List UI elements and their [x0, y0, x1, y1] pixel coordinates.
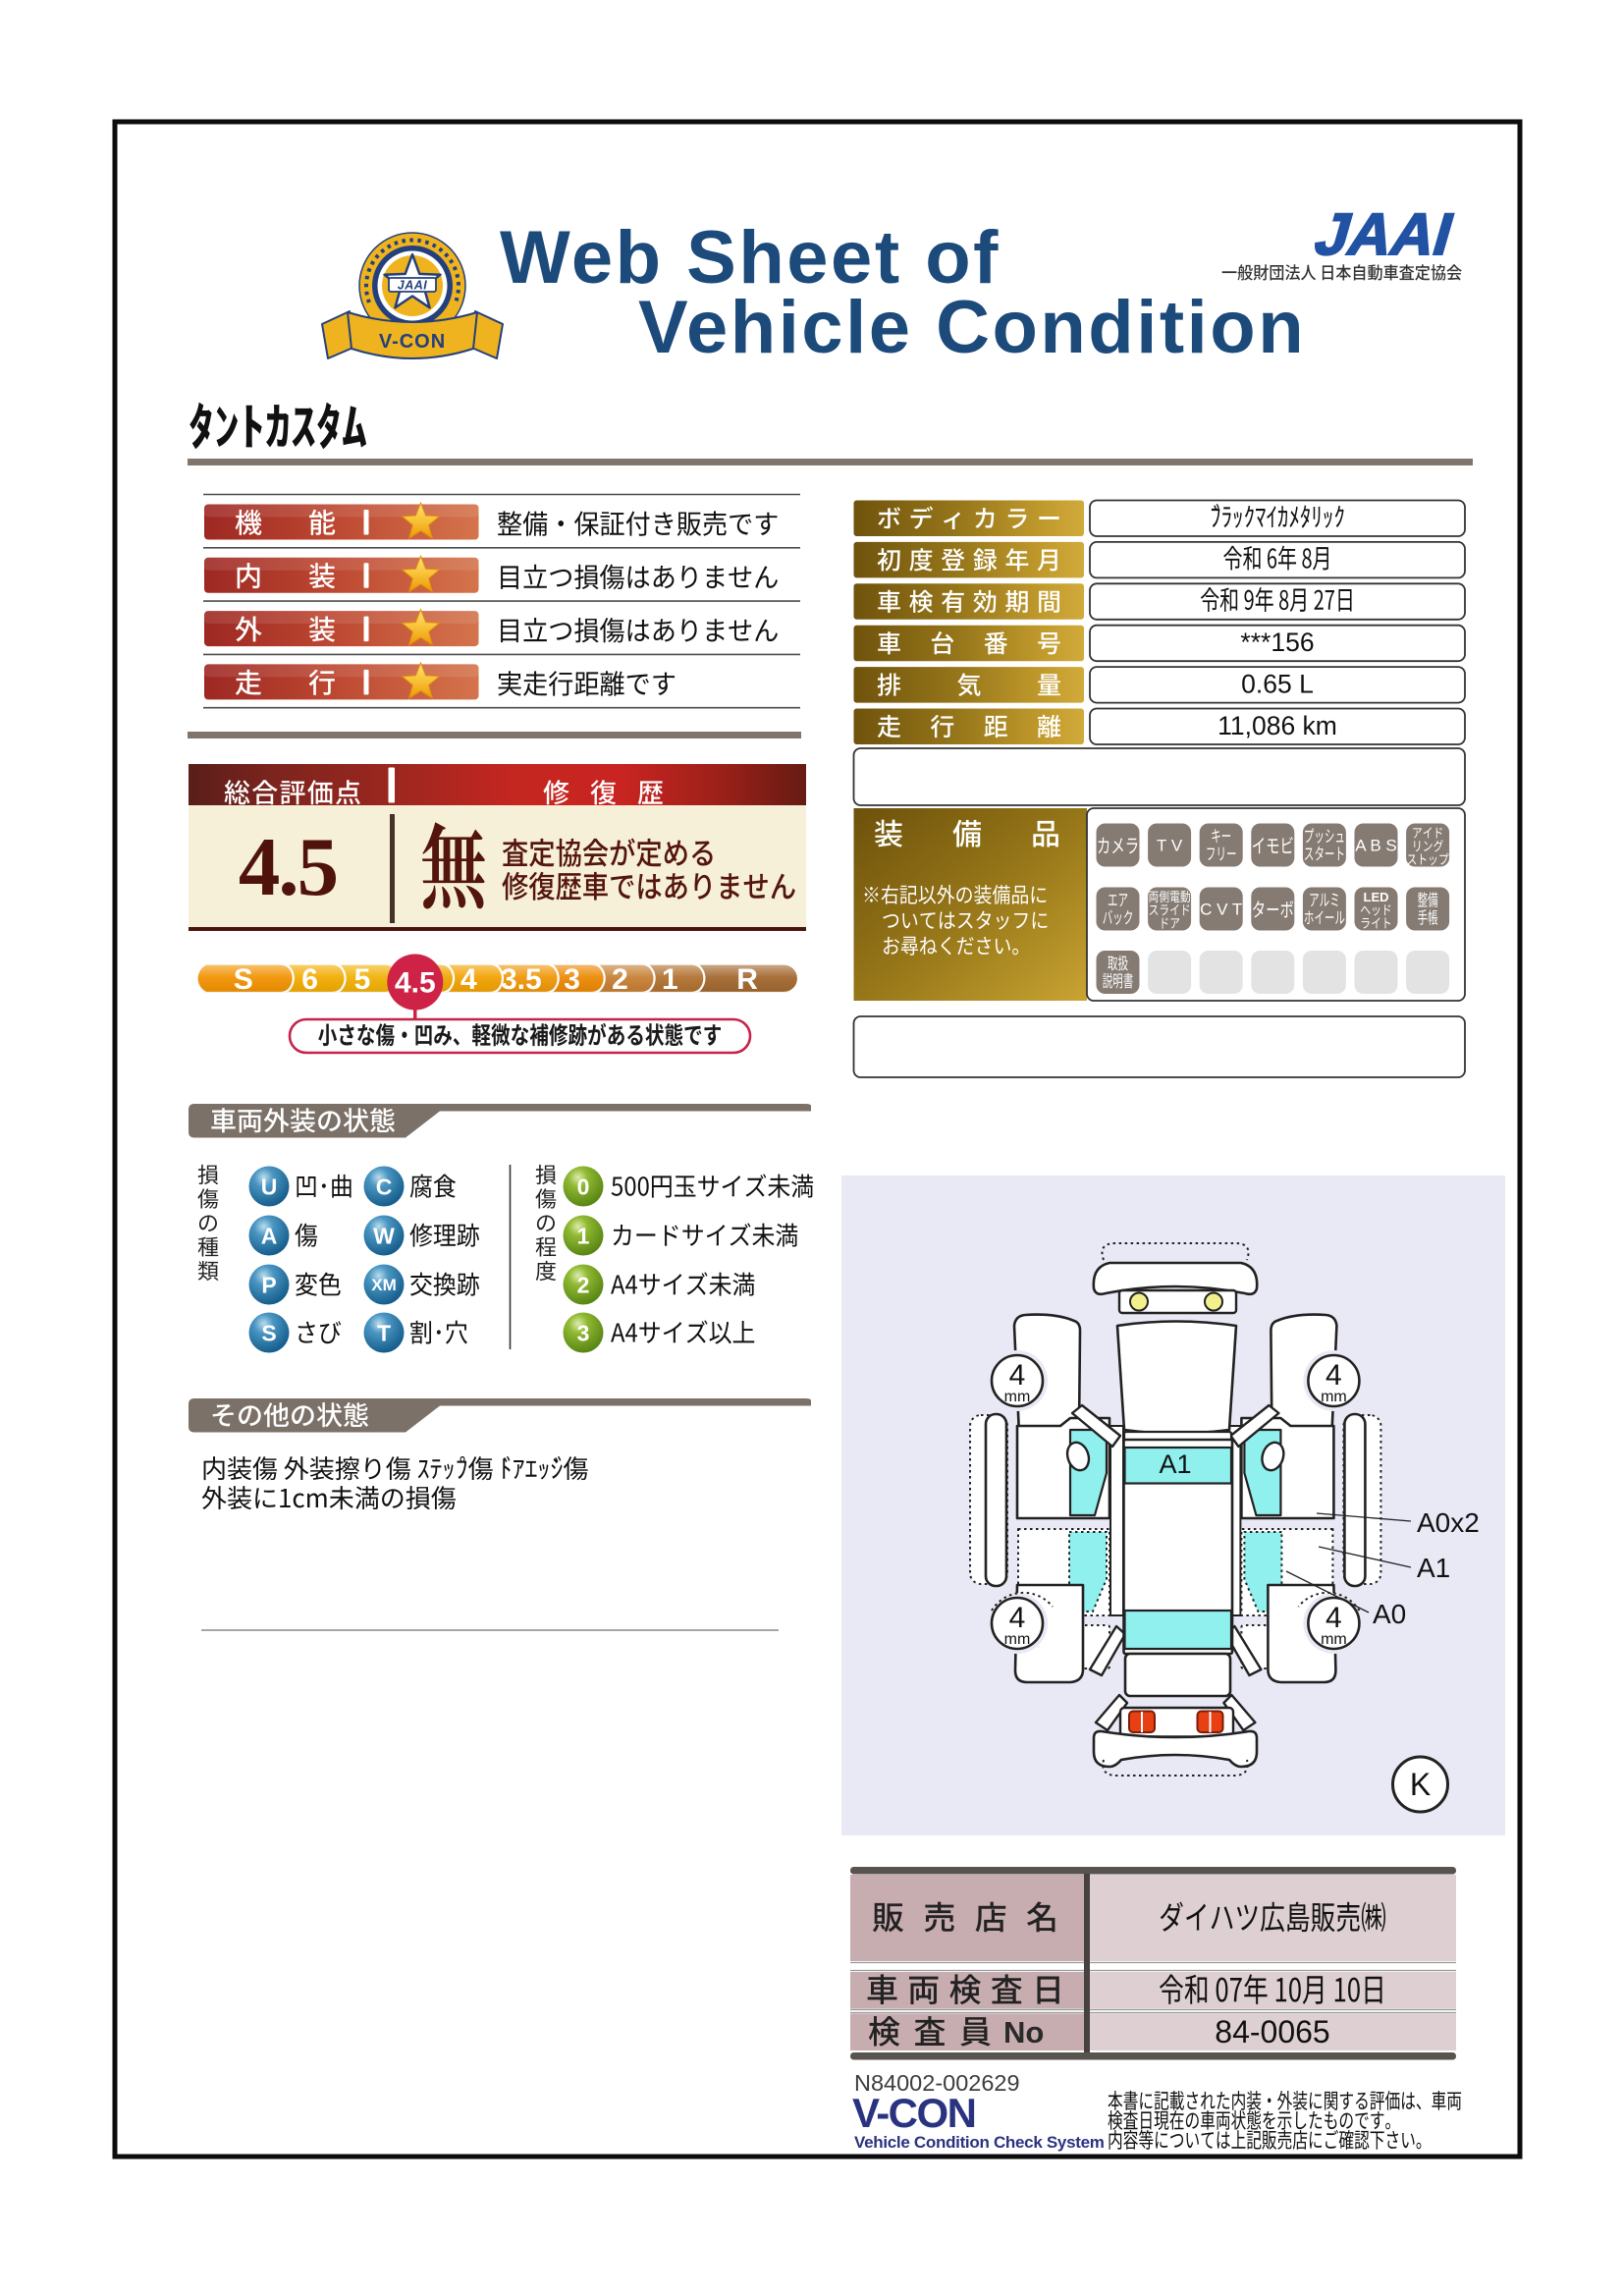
svg-text:A: A	[261, 1223, 278, 1248]
svg-text:C: C	[376, 1174, 393, 1199]
svg-text:2: 2	[577, 1272, 590, 1297]
svg-text:R: R	[736, 963, 758, 996]
svg-text:LED: LED	[1364, 890, 1389, 904]
svg-text:K: K	[1410, 1767, 1431, 1802]
svg-text:***156: ***156	[1240, 628, 1314, 657]
svg-text:3: 3	[564, 963, 580, 996]
svg-text:4: 4	[1325, 1359, 1342, 1392]
svg-text:V-CON: V-CON	[379, 331, 446, 353]
svg-text:T V: T V	[1157, 837, 1183, 855]
svg-text:Vehicle Condition: Vehicle Condition	[638, 286, 1306, 369]
svg-text:1: 1	[577, 1223, 590, 1248]
svg-text:V-CON: V-CON	[852, 2090, 976, 2136]
svg-text:S: S	[234, 963, 253, 996]
svg-text:84-0065: 84-0065	[1215, 2014, 1329, 2050]
svg-text:0.65 L: 0.65 L	[1241, 670, 1314, 699]
svg-text:A0: A0	[1373, 1599, 1406, 1629]
svg-text:11,086 km: 11,086 km	[1217, 711, 1337, 740]
svg-text:T: T	[377, 1320, 391, 1345]
svg-text:P: P	[261, 1272, 276, 1297]
svg-text:4.5: 4.5	[239, 821, 337, 913]
svg-text:XM: XM	[371, 1276, 397, 1294]
svg-text:mm: mm	[1321, 1631, 1347, 1648]
svg-text:No: No	[1003, 2015, 1044, 2050]
svg-text:A0x2: A0x2	[1417, 1507, 1480, 1538]
svg-text:4: 4	[1009, 1602, 1026, 1634]
svg-text:JAAI: JAAI	[1308, 201, 1461, 267]
svg-text:4: 4	[460, 963, 477, 996]
svg-text:A1: A1	[1159, 1449, 1191, 1479]
svg-text:4: 4	[1009, 1359, 1026, 1392]
svg-text:4: 4	[1325, 1602, 1342, 1634]
svg-text:1: 1	[662, 963, 678, 996]
svg-text:C V T: C V T	[1200, 901, 1242, 919]
svg-text:5: 5	[354, 963, 371, 996]
svg-text:2: 2	[612, 963, 628, 996]
svg-text:mm: mm	[1004, 1631, 1031, 1648]
svg-text:mm: mm	[1321, 1389, 1347, 1405]
svg-text:6: 6	[301, 963, 318, 996]
svg-text:Vehicle Condition Check System: Vehicle Condition Check System	[854, 2133, 1105, 2152]
svg-text:S: S	[261, 1320, 276, 1345]
svg-text:4.5: 4.5	[395, 967, 436, 1000]
svg-text:U: U	[261, 1174, 278, 1199]
svg-text:JAAI: JAAI	[398, 279, 428, 293]
svg-text:0: 0	[577, 1174, 590, 1199]
svg-text:A B S: A B S	[1355, 837, 1397, 855]
svg-text:W: W	[373, 1223, 395, 1248]
svg-text:3.5: 3.5	[501, 963, 542, 996]
svg-text:3: 3	[577, 1320, 590, 1345]
svg-text:A1: A1	[1417, 1553, 1450, 1583]
svg-text:mm: mm	[1004, 1389, 1031, 1405]
